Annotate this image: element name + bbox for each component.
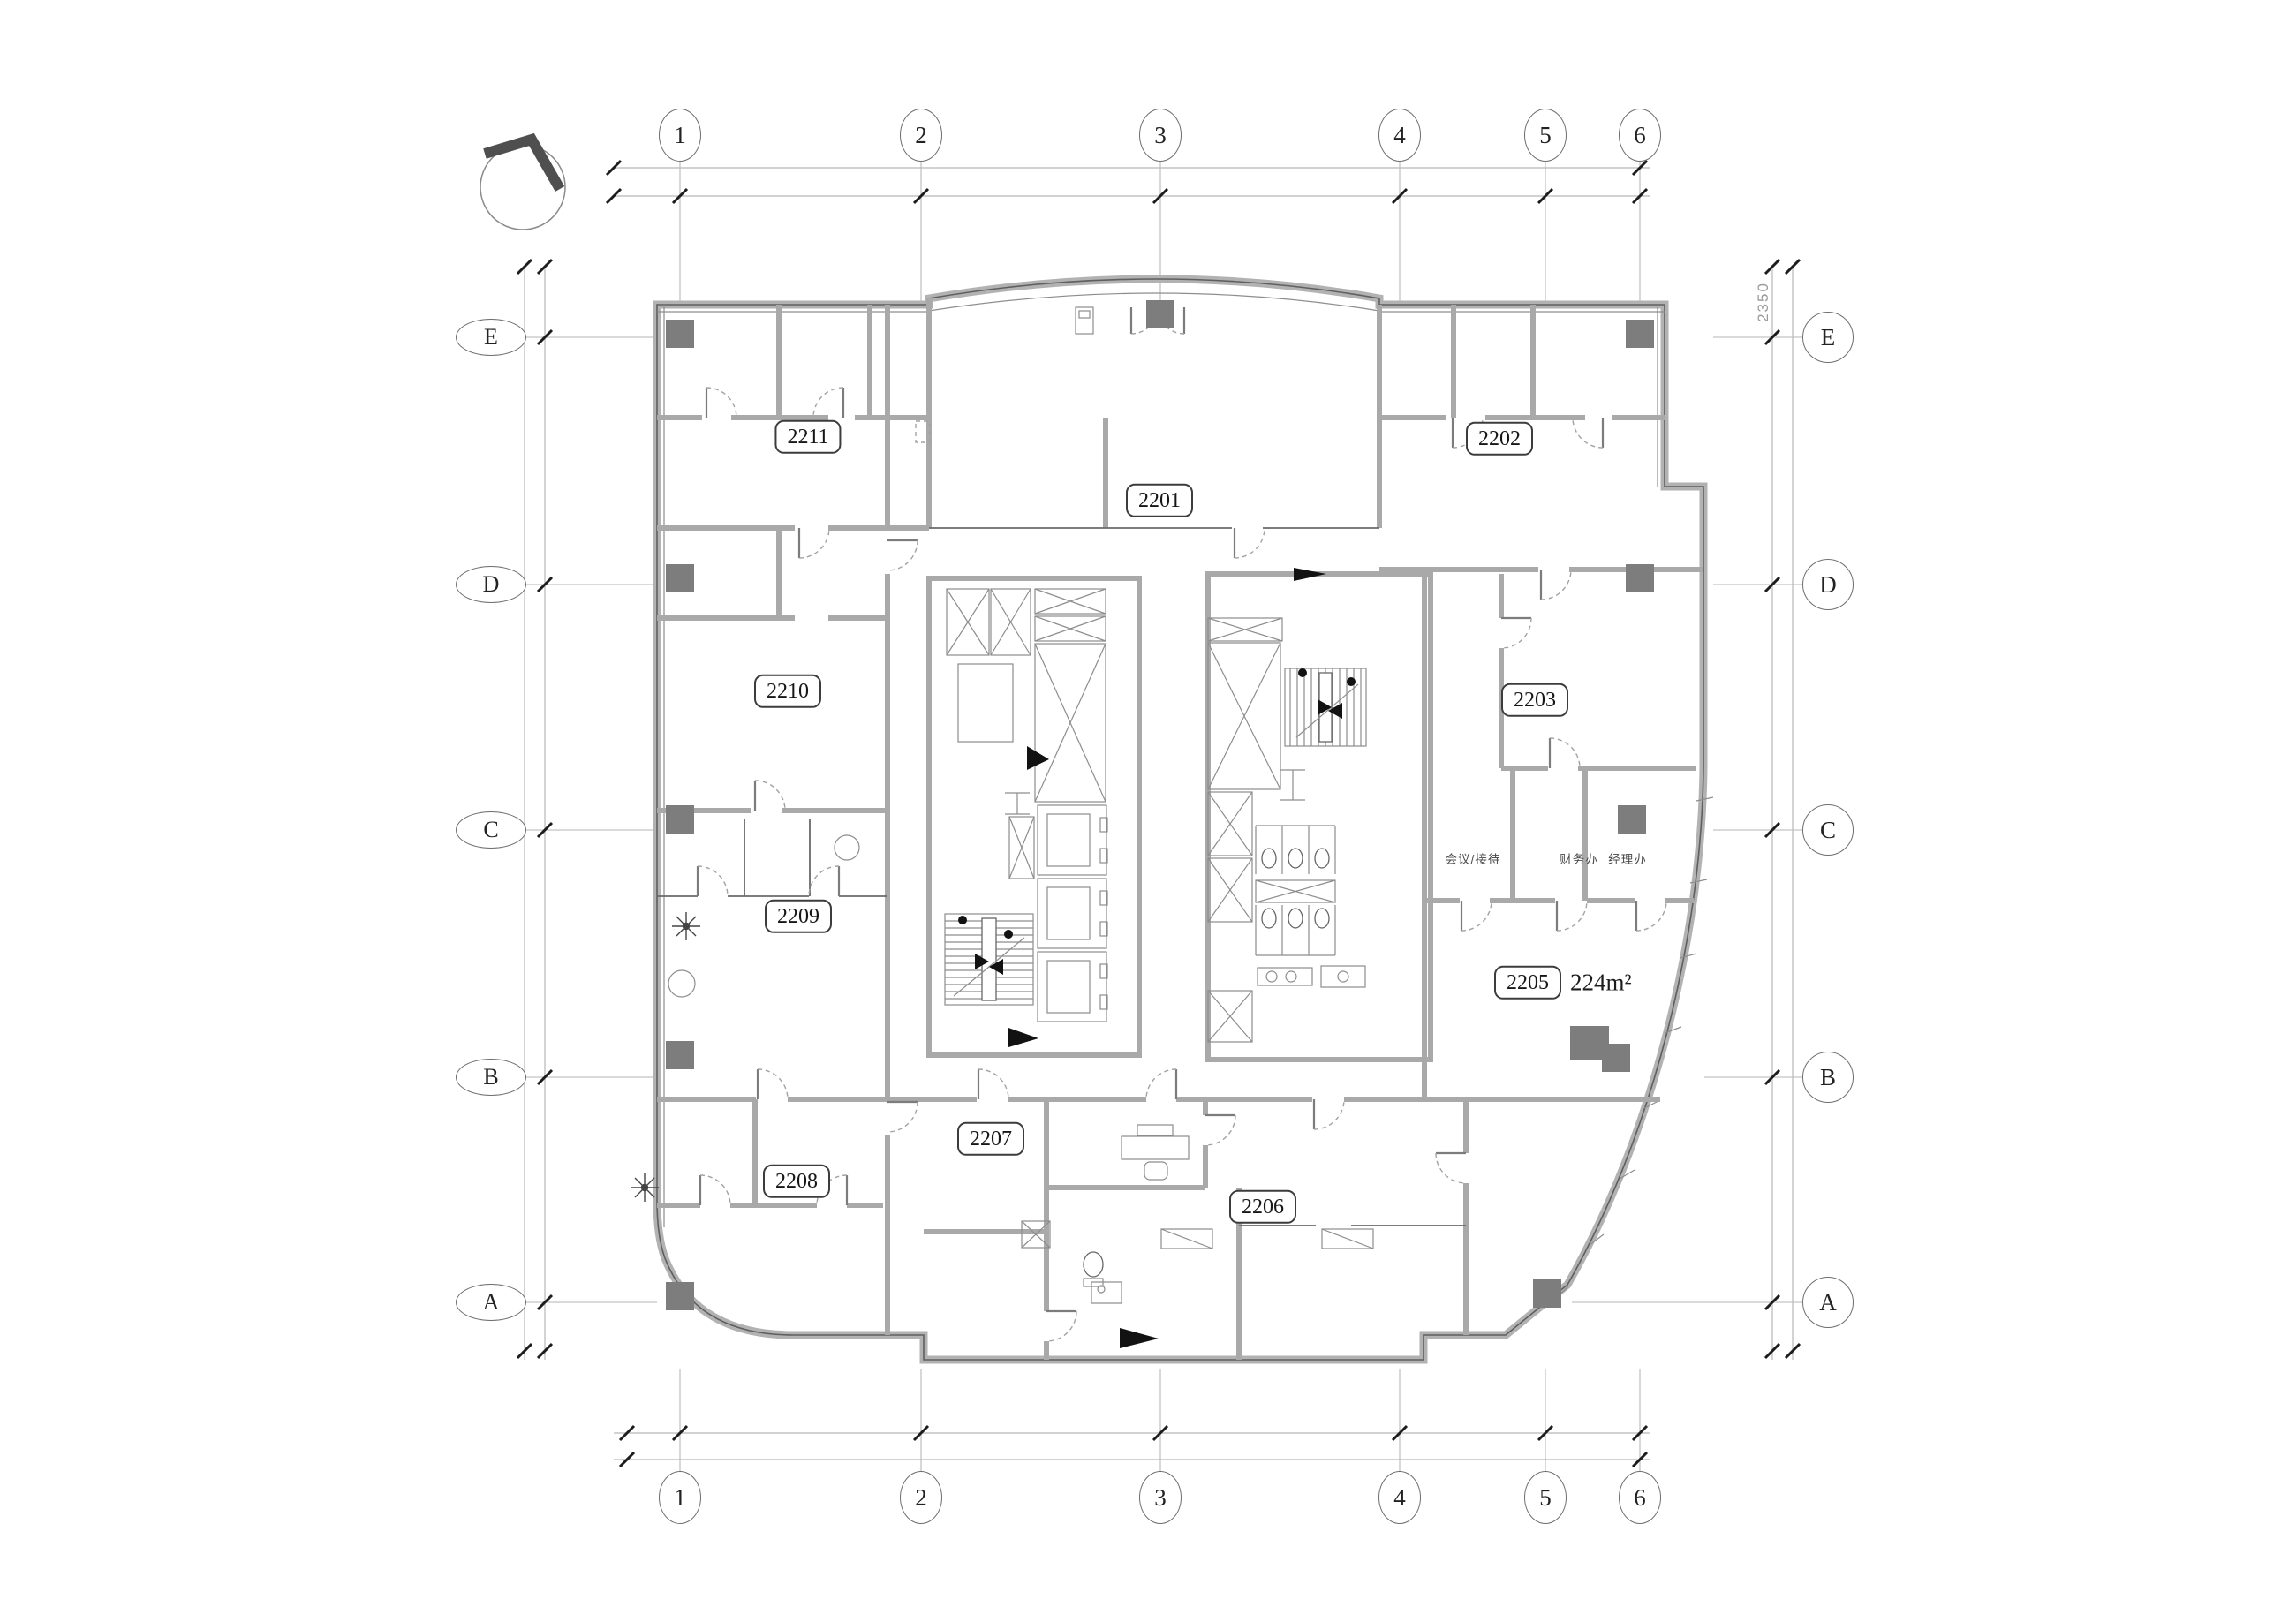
room-label-2207: 2207 <box>957 1122 1024 1156</box>
grid-bubble-rowC-left: C <box>456 811 526 849</box>
room-label-2201: 2201 <box>1126 484 1193 517</box>
office-label-meeting-reception: 会议/接待 <box>1446 849 1501 867</box>
room-label-2209: 2209 <box>765 900 832 933</box>
grid-bubble-rowD-right: D <box>1802 559 1854 610</box>
grid-bubble-col3-bottom: 3 <box>1139 1471 1182 1524</box>
grid-bubble-col6-bottom: 6 <box>1619 1471 1661 1524</box>
floor-plan-drawing <box>0 0 2296 1622</box>
right-core <box>1208 574 1431 1060</box>
grid-bubble-col1-bottom: 1 <box>659 1471 701 1524</box>
office-label-finance: 财务办 <box>1560 849 1598 867</box>
grid-bubble-col2-bottom: 2 <box>900 1471 942 1524</box>
left-core <box>929 578 1139 1055</box>
grid-bubble-col3-top: 3 <box>1139 109 1182 162</box>
grid-bubble-rowE-left: E <box>456 319 526 356</box>
grid-bubble-col4-top: 4 <box>1378 109 1421 162</box>
left-stair <box>945 914 1033 1005</box>
room-label-2203: 2203 <box>1501 683 1568 717</box>
room-label-2205: 2205 <box>1494 966 1561 1000</box>
grid-bubble-rowB-right: B <box>1802 1052 1854 1103</box>
dimension-lines <box>517 161 1800 1467</box>
dimension-right-2350: 2350 <box>1755 282 1772 322</box>
grid-bubble-col4-bottom: 4 <box>1378 1471 1421 1524</box>
north-arrow-icon <box>480 140 565 230</box>
grid-lines <box>525 162 1803 1471</box>
room-area-2205: 224m² <box>1570 969 1632 997</box>
interior-walls <box>657 298 1703 1360</box>
room-label-2211: 2211 <box>774 420 841 454</box>
grid-bubble-rowD-left: D <box>456 566 526 603</box>
elevator-cars <box>1038 805 1107 1022</box>
floor-plan-sheet: 1 2 3 4 5 6 1 2 3 4 5 6 E D C B A E D C … <box>0 0 2296 1622</box>
grid-bubble-rowA-right: A <box>1802 1277 1854 1328</box>
toilets <box>1256 826 1365 987</box>
room-label-2210: 2210 <box>754 675 821 708</box>
room-label-2206: 2206 <box>1229 1190 1296 1224</box>
office-label-manager: 经理办 <box>1608 849 1647 867</box>
room-label-2208: 2208 <box>763 1165 830 1198</box>
grid-bubble-rowE-right: E <box>1802 312 1854 363</box>
grid-bubble-col5-bottom: 5 <box>1524 1471 1567 1524</box>
grid-bubble-rowC-right: C <box>1802 804 1854 856</box>
right-stair <box>1285 668 1366 746</box>
grid-bubble-col1-top: 1 <box>659 109 701 162</box>
room-label-2202: 2202 <box>1466 422 1533 456</box>
grid-bubble-rowB-left: B <box>456 1059 526 1096</box>
grid-bubble-col2-top: 2 <box>900 109 942 162</box>
grid-bubble-col6-top: 6 <box>1619 109 1661 162</box>
grid-bubble-col5-top: 5 <box>1524 109 1567 162</box>
grid-bubble-rowA-left: A <box>456 1284 526 1321</box>
